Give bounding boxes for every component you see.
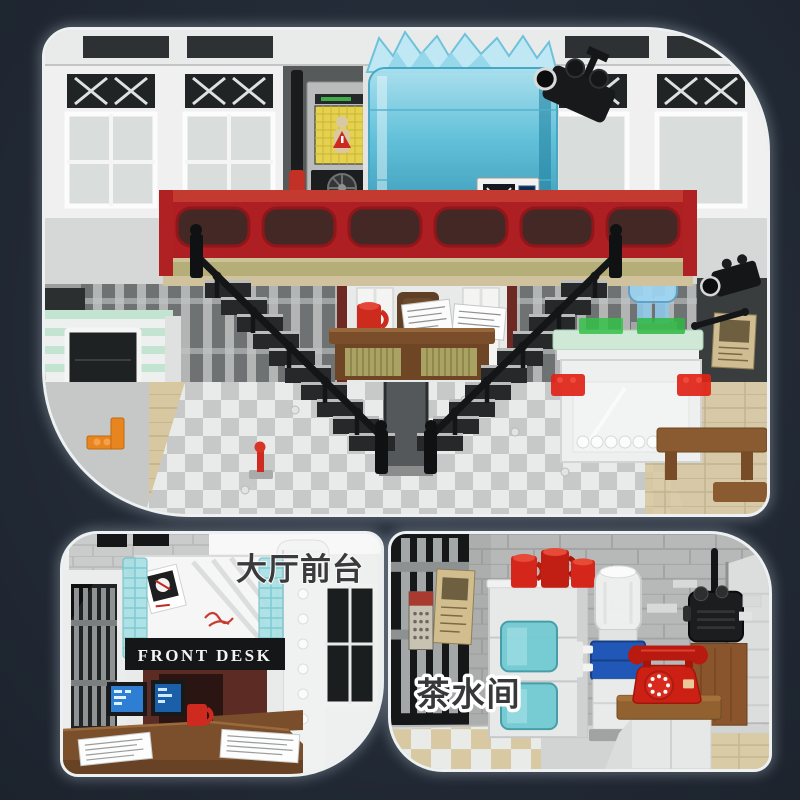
tearoom-label: 茶水间 [417, 675, 522, 712]
red-cap-piece [551, 374, 585, 396]
red-cap-piece [677, 374, 711, 396]
side-table [605, 695, 721, 769]
lobby-front-desk-panel: FRONT DESK [60, 531, 384, 777]
kitchen-cabinet [487, 580, 589, 737]
keypad-panel [409, 592, 433, 650]
product-photo-collage: FRONT DESK [0, 0, 800, 800]
lobby-scene: FRONT DESK [63, 534, 381, 774]
tearoom-panel: 茶水间 [388, 531, 772, 772]
interior-scene [45, 30, 767, 514]
door-poster [433, 569, 475, 645]
front-desk-sign: FRONT DESK [125, 638, 285, 670]
tearoom-scene: 茶水间 [391, 534, 769, 769]
red-telephone [628, 646, 708, 704]
paper-stack [220, 729, 300, 762]
front-desk-sign-text: FRONT DESK [138, 646, 273, 665]
red-mug [187, 704, 207, 726]
centre-walkway [385, 382, 427, 466]
computer-monitors [107, 680, 185, 716]
lobby-label: 大厅前台 [236, 552, 364, 587]
main-interior-panel [42, 27, 770, 517]
